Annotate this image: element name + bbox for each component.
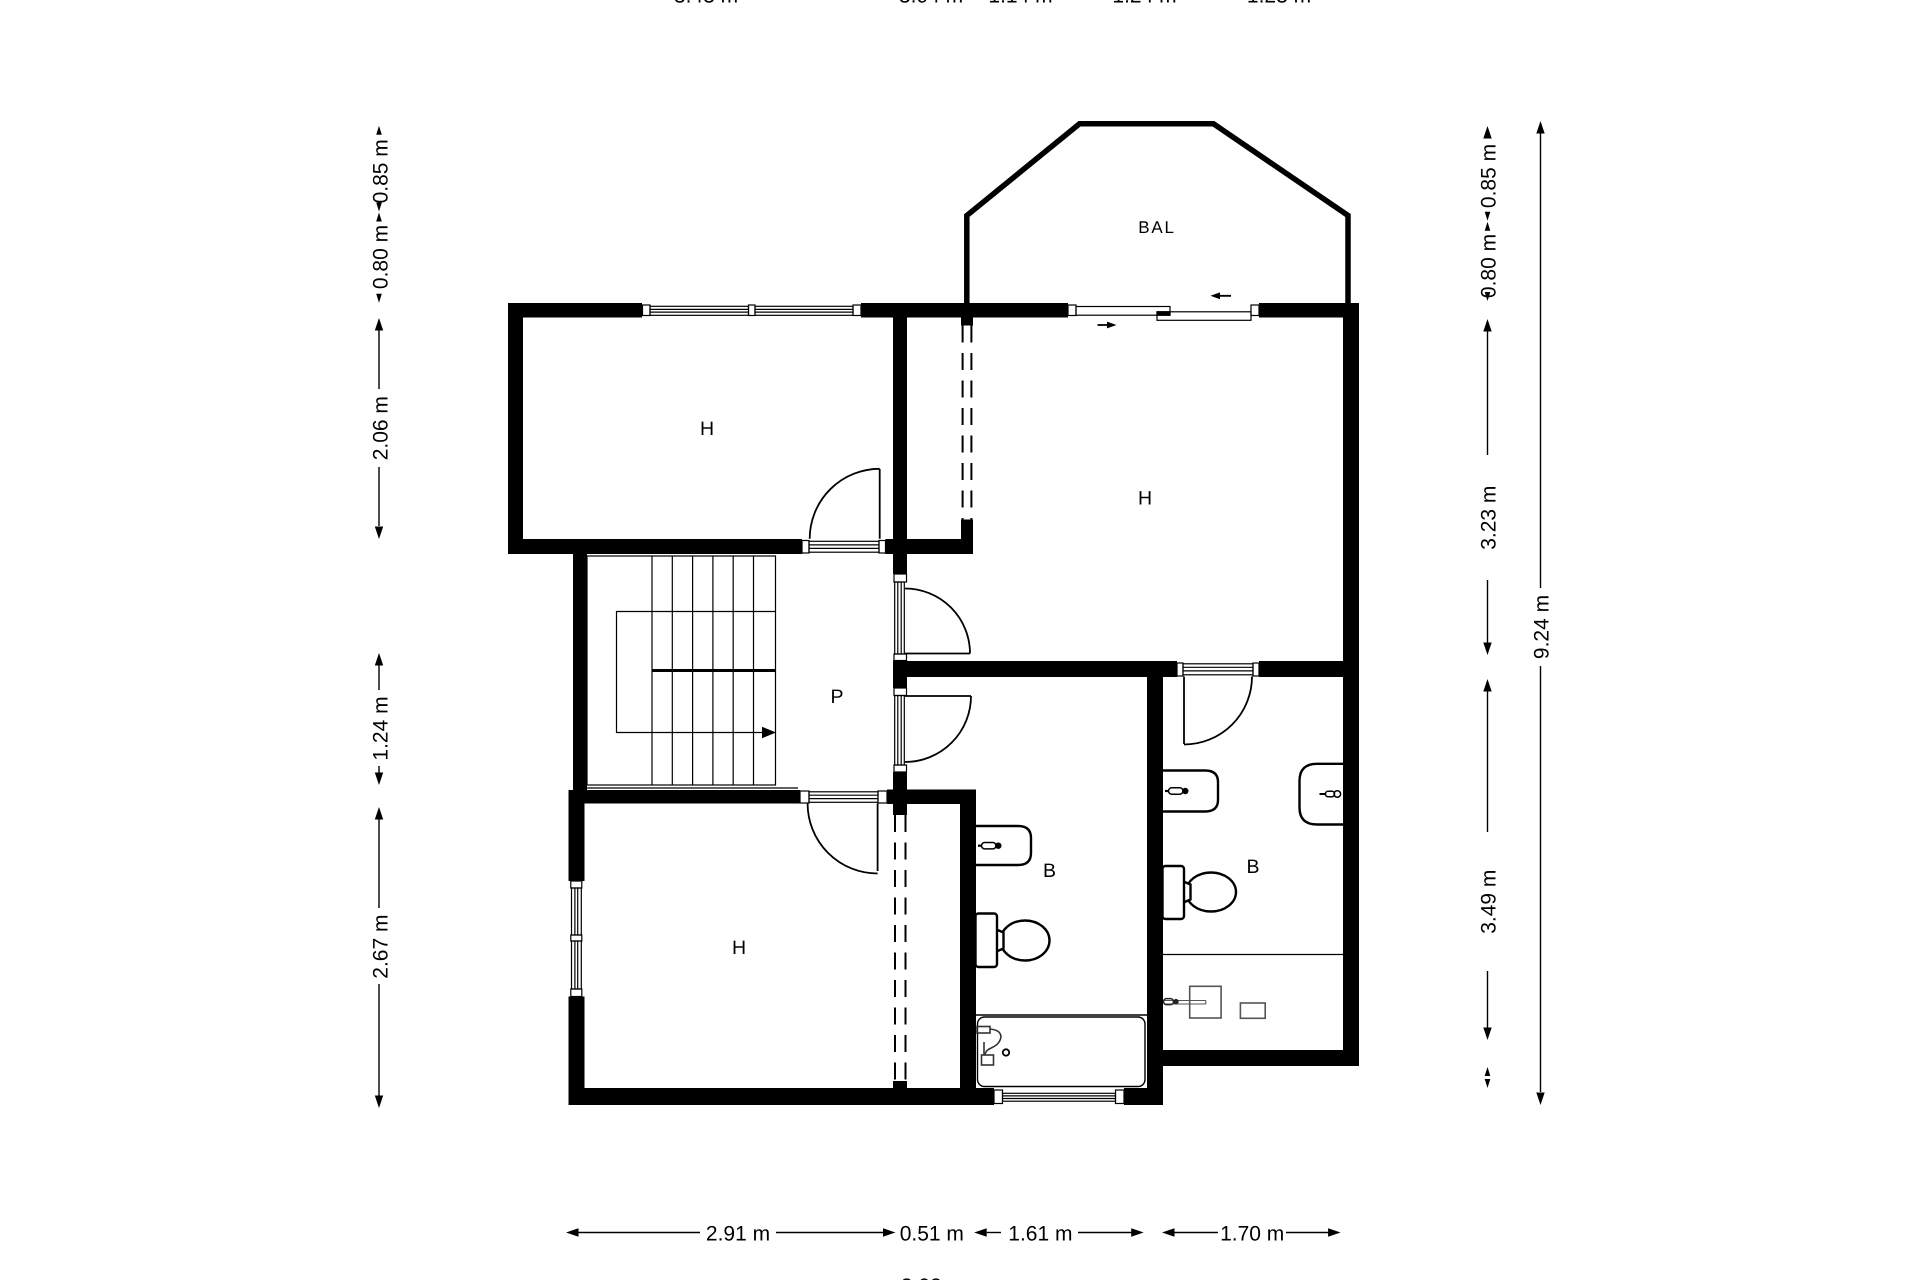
svg-text:H: H (700, 418, 714, 440)
svg-text:B: B (1246, 856, 1259, 878)
svg-text:1.23 m: 1.23 m (1247, 0, 1311, 8)
svg-text:2.91 m: 2.91 m (706, 1223, 770, 1246)
svg-text:0.85 m: 0.85 m (1478, 144, 1501, 208)
svg-text:2.06 m: 2.06 m (370, 396, 393, 460)
svg-text:P: P (830, 686, 843, 708)
svg-text:0.80 m: 0.80 m (370, 225, 393, 289)
svg-text:1.14 m: 1.14 m (988, 0, 1052, 8)
svg-text:0.80 m: 0.80 m (1478, 234, 1501, 298)
svg-text:BAL: BAL (1138, 218, 1176, 237)
svg-text:3.03 m: 3.03 m (901, 1275, 965, 1280)
svg-text:B: B (1043, 860, 1056, 882)
svg-text:2.67 m: 2.67 m (370, 914, 393, 978)
svg-text:3.04 m: 3.04 m (899, 0, 963, 8)
svg-text:H: H (1138, 488, 1152, 510)
svg-text:1.24 m: 1.24 m (1112, 0, 1176, 8)
svg-text:H: H (732, 937, 746, 959)
svg-text:3.43 m: 3.43 m (674, 0, 738, 8)
svg-text:0.85 m: 0.85 m (370, 139, 393, 203)
svg-text:1.70 m: 1.70 m (1220, 1223, 1284, 1246)
svg-text:3.23 m: 3.23 m (1478, 486, 1501, 550)
svg-text:9.24 m: 9.24 m (1531, 595, 1554, 659)
svg-text:0.51 m: 0.51 m (900, 1223, 964, 1246)
svg-text:1.61 m: 1.61 m (1008, 1223, 1072, 1246)
svg-text:3.49 m: 3.49 m (1478, 870, 1501, 934)
svg-text:1.24 m: 1.24 m (370, 696, 393, 760)
